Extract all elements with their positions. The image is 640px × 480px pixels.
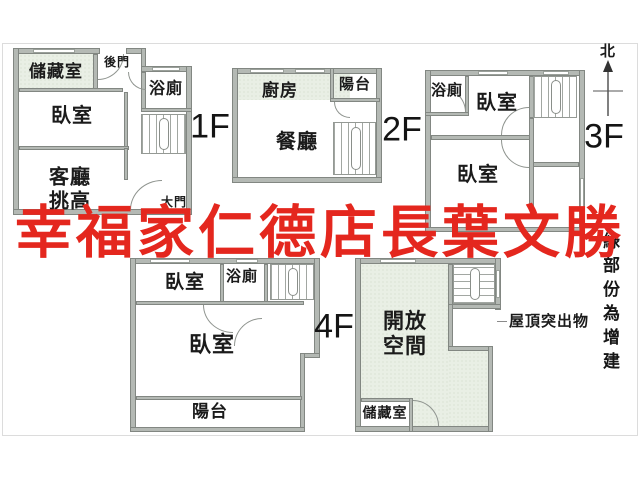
floorplan-image: 儲藏室 後門 臥室 浴廁 客廳 挑高 大門 1F 廚房 陽台 餐廳 2F bbox=[0, 0, 640, 480]
wall bbox=[232, 68, 238, 183]
room-label-bedroom-3f-lower: 臥室 bbox=[457, 164, 499, 188]
floor-tag-3f: 3F bbox=[584, 118, 624, 157]
wall bbox=[448, 304, 453, 351]
wall bbox=[425, 112, 469, 116]
room-label-balcony-4f: 陽台 bbox=[192, 402, 228, 422]
room-label-bedroom-1f: 臥室 bbox=[51, 105, 93, 129]
room-label-storage-roof: 儲藏室 bbox=[363, 405, 408, 422]
wall bbox=[361, 398, 413, 402]
window bbox=[543, 71, 569, 75]
wall bbox=[264, 264, 268, 304]
wall bbox=[355, 258, 361, 432]
stair-rail bbox=[470, 268, 480, 300]
room-label-bedroom-4f-upper: 臥室 bbox=[165, 272, 205, 294]
stair-rail bbox=[551, 80, 561, 114]
window bbox=[496, 270, 500, 298]
wall bbox=[448, 304, 501, 309]
room-label-dining: 餐廳 bbox=[276, 131, 318, 155]
wall bbox=[300, 353, 305, 432]
room-label-storage-1f: 儲藏室 bbox=[29, 62, 83, 82]
floor-tag-4f: 4F bbox=[314, 308, 354, 347]
wall bbox=[330, 68, 334, 102]
wall bbox=[488, 346, 493, 432]
wall bbox=[141, 108, 192, 112]
room-label-open-space: 開放 空間 bbox=[383, 310, 427, 360]
label-roof-protrusion: 屋頂突出物 bbox=[509, 313, 589, 331]
wall bbox=[19, 88, 123, 92]
roof-protrusion-leader-line bbox=[497, 321, 507, 322]
north-arrow-icon bbox=[593, 60, 623, 120]
wall bbox=[232, 177, 382, 183]
room-label-balcony-2f: 陽台 bbox=[339, 76, 371, 94]
wall bbox=[19, 146, 129, 150]
open-space-floor-green bbox=[448, 351, 488, 426]
room-label-bath-1f: 浴廁 bbox=[149, 81, 183, 100]
floor-tag-2f: 2F bbox=[382, 111, 422, 150]
wall bbox=[130, 258, 136, 432]
label-back-door: 後門 bbox=[104, 55, 130, 69]
room-label-bath-4f: 浴廁 bbox=[226, 268, 258, 286]
wall bbox=[533, 162, 579, 167]
wall bbox=[448, 346, 493, 351]
wall bbox=[124, 92, 128, 148]
room-label-bedroom-4f-main: 臥室 bbox=[189, 332, 235, 358]
stair-rail bbox=[351, 127, 361, 170]
window bbox=[152, 67, 180, 71]
wall bbox=[136, 396, 302, 400]
floor-tag-1f: 1F bbox=[190, 108, 230, 147]
window bbox=[33, 49, 75, 53]
room-label-kitchen: 廚房 bbox=[262, 81, 298, 101]
window bbox=[250, 69, 284, 73]
wall bbox=[355, 426, 493, 432]
north-label: 北 bbox=[600, 43, 616, 61]
wall bbox=[220, 264, 224, 304]
stair-rail bbox=[288, 268, 298, 296]
window bbox=[295, 69, 325, 73]
room-label-bedroom-3f-upper: 臥室 bbox=[476, 92, 518, 116]
wall bbox=[376, 68, 382, 183]
wall bbox=[124, 148, 128, 180]
window bbox=[478, 71, 508, 75]
room-label-bath-3f: 浴廁 bbox=[431, 82, 463, 100]
wall bbox=[130, 427, 305, 432]
watermark-text: 幸福家仁德店長葉文勝 bbox=[15, 187, 625, 269]
stair-rail bbox=[159, 118, 169, 150]
